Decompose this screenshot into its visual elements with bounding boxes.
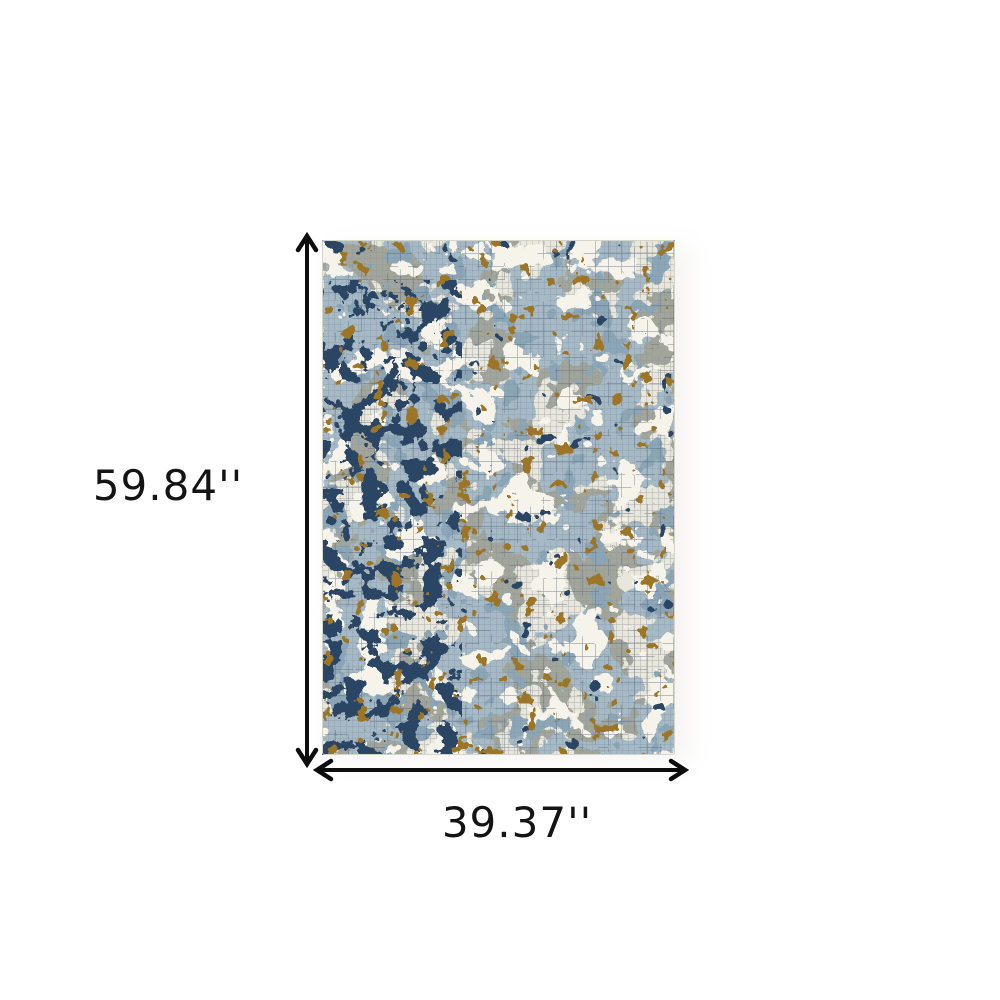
rug-image — [322, 240, 675, 755]
height-dimension-arrow — [295, 232, 319, 768]
rug-ochre-specks — [322, 240, 675, 755]
width-dimension-label: 39.37'' — [407, 800, 627, 846]
width-dimension-arrow — [313, 758, 689, 782]
height-dimension-label: 59.84'' — [58, 463, 278, 509]
product-dimension-diagram: 59.84'' 39.37'' — [0, 0, 1000, 1000]
rug-abstract-pattern — [322, 240, 675, 755]
